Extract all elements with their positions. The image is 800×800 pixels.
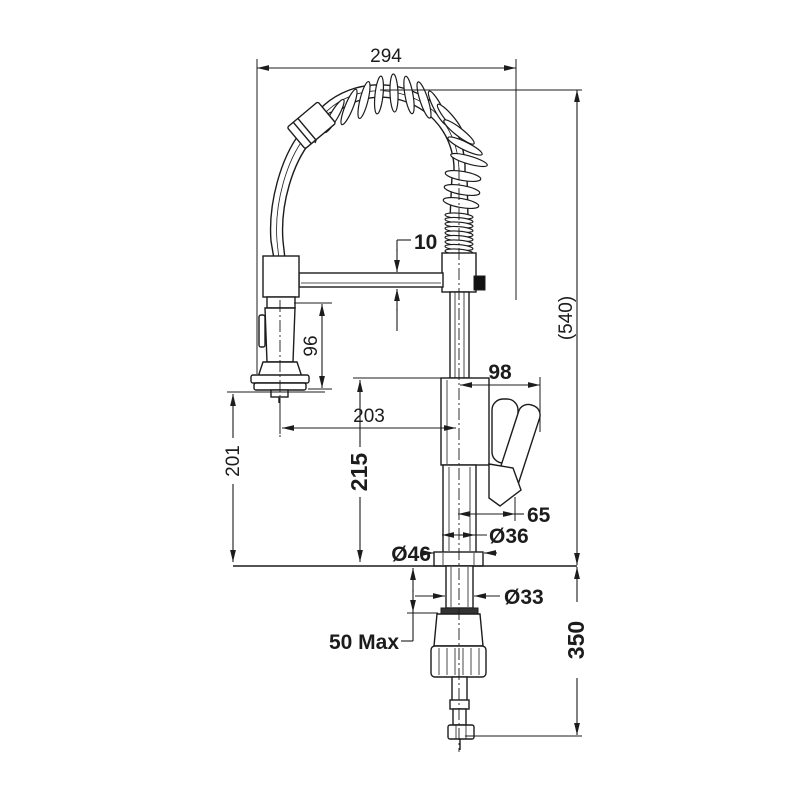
lever-handle xyxy=(489,399,543,506)
base-flange xyxy=(434,552,483,566)
spray-head-holder xyxy=(263,256,299,308)
pull-out-hose xyxy=(271,133,311,259)
dim-arm-thickness-label: 10 xyxy=(414,231,437,254)
dim-max-counter-thickness: 50 Max xyxy=(329,568,438,654)
dim-below-counter-length-label: 350 xyxy=(563,621,589,659)
dim-shank-diameter: Ø33 xyxy=(415,586,544,609)
dim-handle-offset-label: 65 xyxy=(527,504,551,527)
dim-spray-to-spout-label: 203 xyxy=(353,406,385,427)
spray-nozzle xyxy=(271,390,288,397)
faucet-technical-drawing: 294 (540) 10 96 203 xyxy=(0,0,800,800)
riser-column xyxy=(450,292,469,378)
dim-spout-support-height-label: 215 xyxy=(346,453,372,492)
body-housing xyxy=(441,378,489,553)
dim-shank-diameter-label: Ø33 xyxy=(504,586,544,609)
diverter-knob xyxy=(474,276,485,290)
mounting-shank xyxy=(441,566,478,614)
faucet-object xyxy=(233,74,577,752)
dim-spray-outlet-height: 201 xyxy=(223,392,325,562)
mounting-nut xyxy=(431,614,486,677)
dim-body-diameter-label: Ø36 xyxy=(489,525,529,548)
dim-height-above-counter-label: (540) xyxy=(556,296,577,340)
spout-tube xyxy=(305,85,468,218)
spout-body-block xyxy=(442,253,485,292)
dim-overall-width-label: 294 xyxy=(370,46,402,67)
drawing-canvas: 294 (540) 10 96 203 xyxy=(0,0,800,800)
dim-max-counter-thickness-label: 50 Max xyxy=(329,631,399,654)
support-arm xyxy=(299,273,443,287)
supply-stud xyxy=(448,677,474,750)
seal-washer xyxy=(441,608,478,614)
spring-coil xyxy=(305,74,489,211)
dim-spray-head-length-label: 96 xyxy=(301,335,322,356)
dim-overall-width: 294 xyxy=(257,46,516,374)
dim-spray-to-spout: 203 xyxy=(280,398,456,434)
dim-handle-reach-label: 98 xyxy=(488,361,512,384)
dim-spray-outlet-height-label: 201 xyxy=(223,445,244,477)
spray-button xyxy=(259,315,265,347)
dim-flange-diameter-label: Ø46 xyxy=(391,543,431,566)
